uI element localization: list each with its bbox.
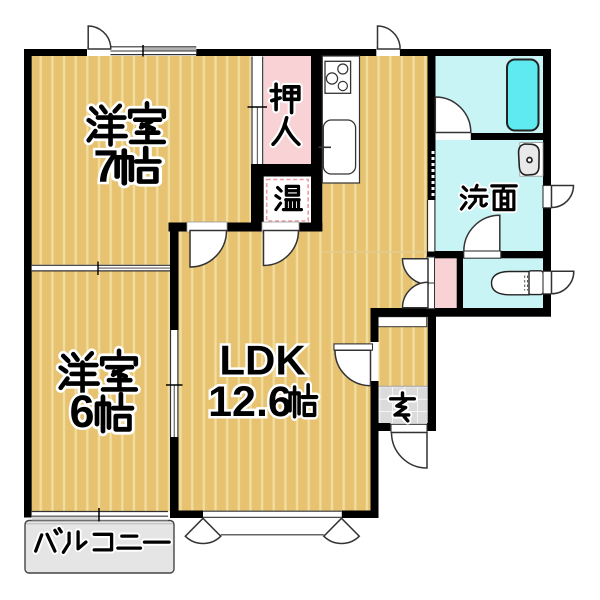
svg-text:6: 6 <box>69 386 94 437</box>
svg-text:12.6: 12.6 <box>208 378 292 426</box>
svg-text:LDK: LDK <box>219 337 305 384</box>
